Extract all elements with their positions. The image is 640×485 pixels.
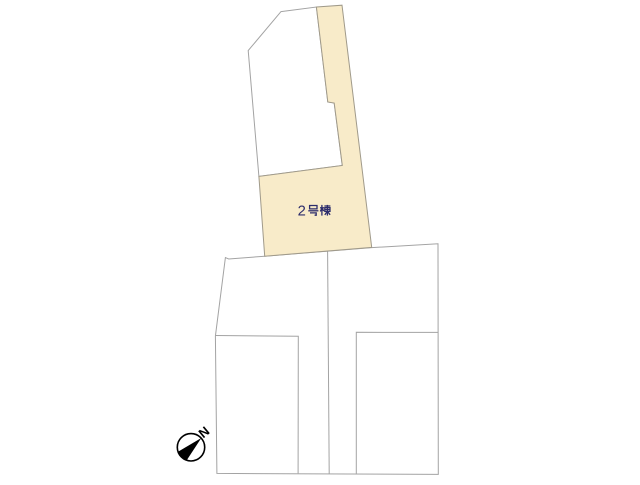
svg-text:2: 2 xyxy=(298,203,306,219)
